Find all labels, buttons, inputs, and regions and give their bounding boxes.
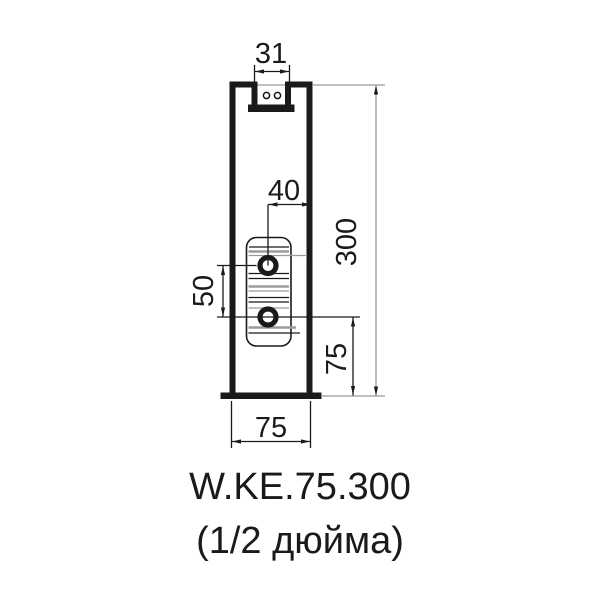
channel-capsule xyxy=(247,238,292,347)
profile-bottom-plate xyxy=(221,393,322,400)
dim-label-300: 300 xyxy=(331,218,363,266)
dim-label-75-width: 75 xyxy=(255,412,287,444)
profile-top-right-ear xyxy=(290,82,313,88)
notch-left-wall xyxy=(252,82,258,108)
dim-top-notch-width: 31 xyxy=(255,38,290,83)
notch-hole-right xyxy=(274,92,280,98)
technical-drawing-canvas: 31 40 300 50 xyxy=(0,0,600,600)
connection-size: (1/2 дюйма) xyxy=(196,520,404,562)
profile-left-wall xyxy=(230,82,236,400)
notch-bottom xyxy=(248,105,295,113)
dim-label-50: 50 xyxy=(188,275,220,307)
dim-profile-width: 75 xyxy=(232,401,311,448)
caption: W.KE.75.300 (1/2 дюйма) xyxy=(189,466,411,562)
dim-label-31: 31 xyxy=(255,38,287,70)
profile-right-wall xyxy=(307,82,313,400)
product-code: W.KE.75.300 xyxy=(189,466,411,508)
dim-label-40: 40 xyxy=(268,175,300,207)
radiator-dimension-drawing: 31 40 300 50 xyxy=(0,0,600,600)
profile-top-left-ear xyxy=(230,82,254,88)
notch-hole-left xyxy=(263,92,269,98)
dim-label-75-vertical: 75 xyxy=(321,343,353,375)
dim-hole-to-bottom: 75 xyxy=(321,317,355,396)
notch-right-wall xyxy=(285,82,291,108)
water-channel xyxy=(247,238,307,347)
